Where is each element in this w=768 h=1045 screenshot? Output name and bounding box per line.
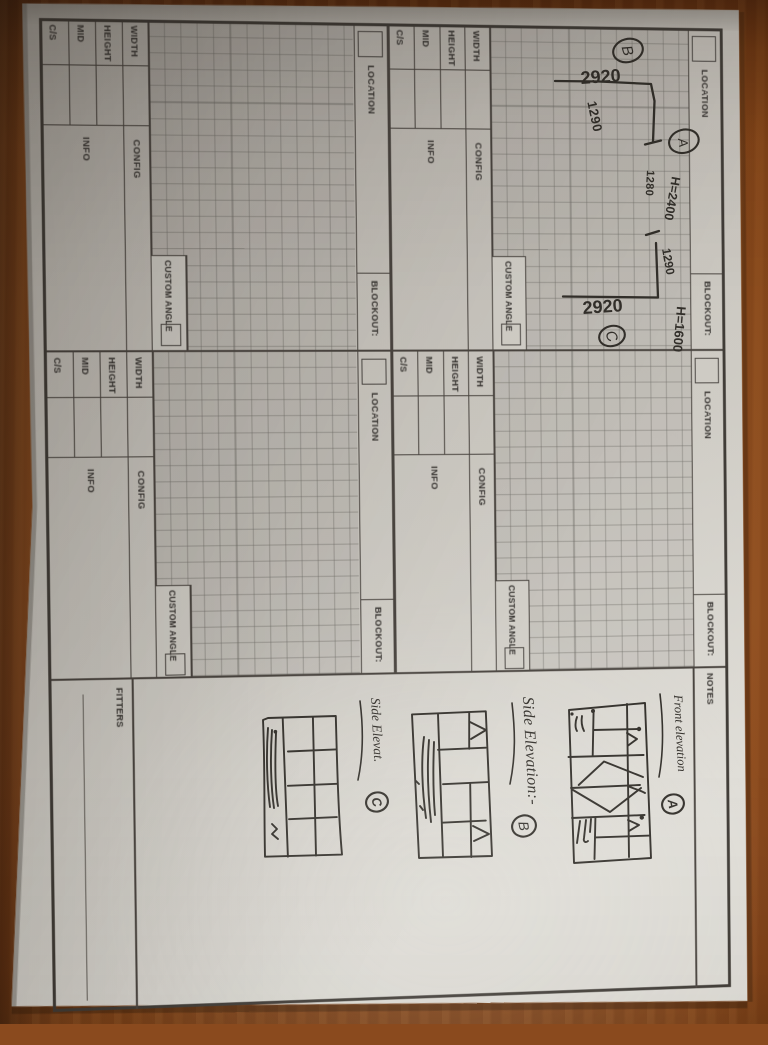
- svg-text:H=1600: H=1600: [670, 306, 689, 353]
- svg-text:Side Elevation:-: Side Elevation:-: [519, 696, 542, 805]
- svg-text:B: B: [515, 820, 532, 832]
- svg-text:2920: 2920: [582, 295, 623, 318]
- svg-text:H=2400: H=2400: [661, 175, 682, 221]
- svg-text:1280: 1280: [643, 170, 656, 197]
- svg-text:B: B: [618, 44, 637, 58]
- svg-text:C: C: [368, 796, 385, 810]
- svg-text:1290: 1290: [584, 100, 605, 134]
- svg-text:1290: 1290: [659, 247, 677, 276]
- svg-text:A: A: [664, 797, 681, 810]
- svg-text:A: A: [675, 136, 691, 148]
- svg-text:2920: 2920: [580, 65, 621, 88]
- svg-text:Front elevation: Front elevation: [671, 693, 689, 772]
- svg-text:Side Elevat.: Side Elevat.: [368, 697, 386, 762]
- svg-text:C: C: [601, 328, 621, 344]
